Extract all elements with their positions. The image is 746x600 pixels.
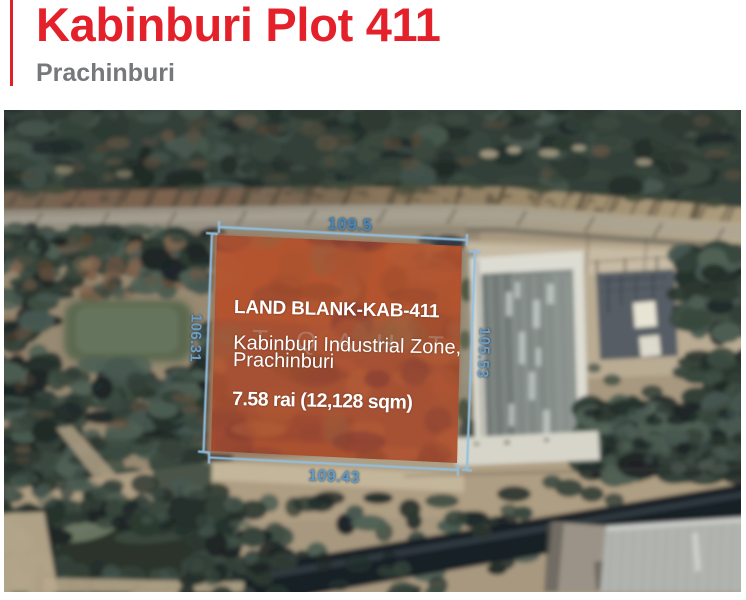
svg-text:109.5: 109.5: [327, 214, 373, 235]
svg-text:7.58 rai (12,128 sqm): 7.58 rai (12,128 sqm): [232, 388, 413, 414]
svg-text:105.53: 105.53: [474, 327, 493, 379]
svg-text:106.31: 106.31: [186, 314, 204, 363]
svg-text:109.43: 109.43: [308, 467, 361, 486]
svg-text:LAND BLANK-KAB-411: LAND BLANK-KAB-411: [234, 297, 440, 322]
svg-text:Prachinburi: Prachinburi: [233, 349, 335, 373]
